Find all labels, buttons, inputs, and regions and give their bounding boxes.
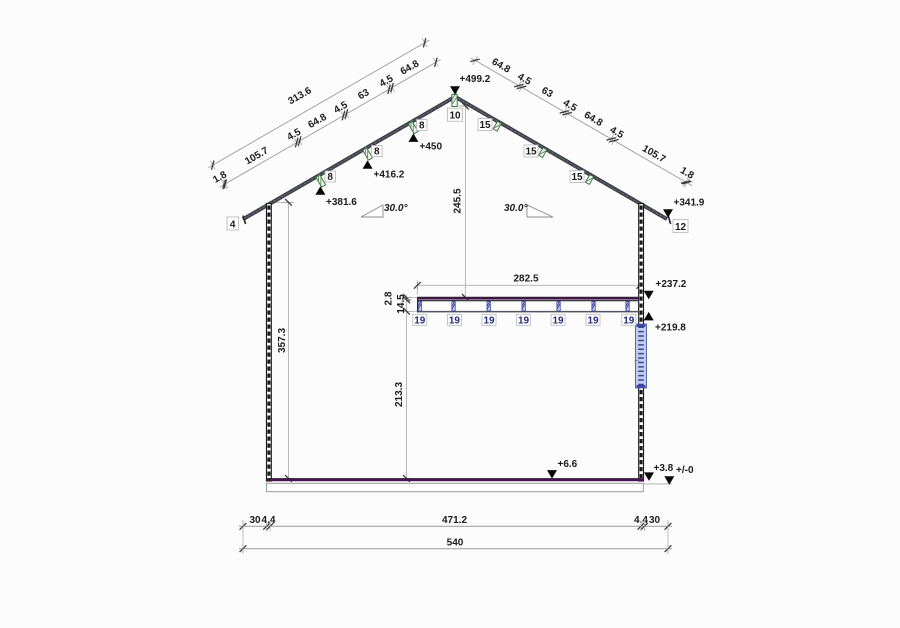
svg-text:4.4: 4.4 bbox=[262, 515, 276, 526]
svg-text:+/-0: +/-0 bbox=[676, 465, 694, 476]
svg-text:14.5: 14.5 bbox=[396, 294, 407, 314]
svg-text:+6.6: +6.6 bbox=[558, 459, 578, 470]
svg-text:2.8: 2.8 bbox=[384, 291, 395, 305]
svg-text:1: 1 bbox=[635, 359, 641, 362]
svg-text:+3.8: +3.8 bbox=[654, 463, 674, 474]
svg-text:4: 4 bbox=[230, 219, 236, 230]
svg-text:19: 19 bbox=[414, 315, 426, 326]
svg-text:357.3: 357.3 bbox=[277, 328, 288, 353]
svg-text:19: 19 bbox=[518, 315, 530, 326]
svg-text:15: 15 bbox=[479, 120, 491, 131]
svg-text:540: 540 bbox=[447, 537, 464, 548]
svg-text:30: 30 bbox=[649, 515, 661, 526]
svg-text:+381.6: +381.6 bbox=[326, 197, 357, 208]
svg-text:+450: +450 bbox=[420, 142, 443, 153]
svg-text:19: 19 bbox=[623, 315, 635, 326]
svg-text:19: 19 bbox=[483, 315, 495, 326]
svg-text:30.0°: 30.0° bbox=[504, 203, 528, 214]
svg-text:19: 19 bbox=[552, 315, 564, 326]
svg-text:30.0°: 30.0° bbox=[384, 203, 408, 214]
svg-text:+416.2: +416.2 bbox=[374, 170, 405, 181]
svg-text:12: 12 bbox=[675, 222, 687, 233]
svg-text:30: 30 bbox=[249, 515, 261, 526]
svg-text:8: 8 bbox=[374, 147, 380, 158]
svg-text:+341.9: +341.9 bbox=[674, 198, 705, 209]
svg-text:+499.2: +499.2 bbox=[460, 74, 491, 85]
svg-text:8: 8 bbox=[327, 172, 333, 183]
svg-text:471.2: 471.2 bbox=[442, 515, 467, 526]
svg-text:282.5: 282.5 bbox=[513, 273, 538, 284]
svg-text:245.5: 245.5 bbox=[453, 188, 464, 213]
svg-text:+219.8: +219.8 bbox=[655, 323, 686, 334]
svg-text:10: 10 bbox=[449, 110, 461, 121]
svg-text:15: 15 bbox=[571, 172, 583, 183]
svg-text:15: 15 bbox=[525, 147, 537, 158]
svg-text:19: 19 bbox=[449, 315, 461, 326]
svg-text:8: 8 bbox=[419, 121, 425, 132]
svg-text:213.3: 213.3 bbox=[394, 382, 405, 407]
svg-text:19: 19 bbox=[587, 315, 599, 326]
svg-text:+237.2: +237.2 bbox=[656, 279, 687, 290]
